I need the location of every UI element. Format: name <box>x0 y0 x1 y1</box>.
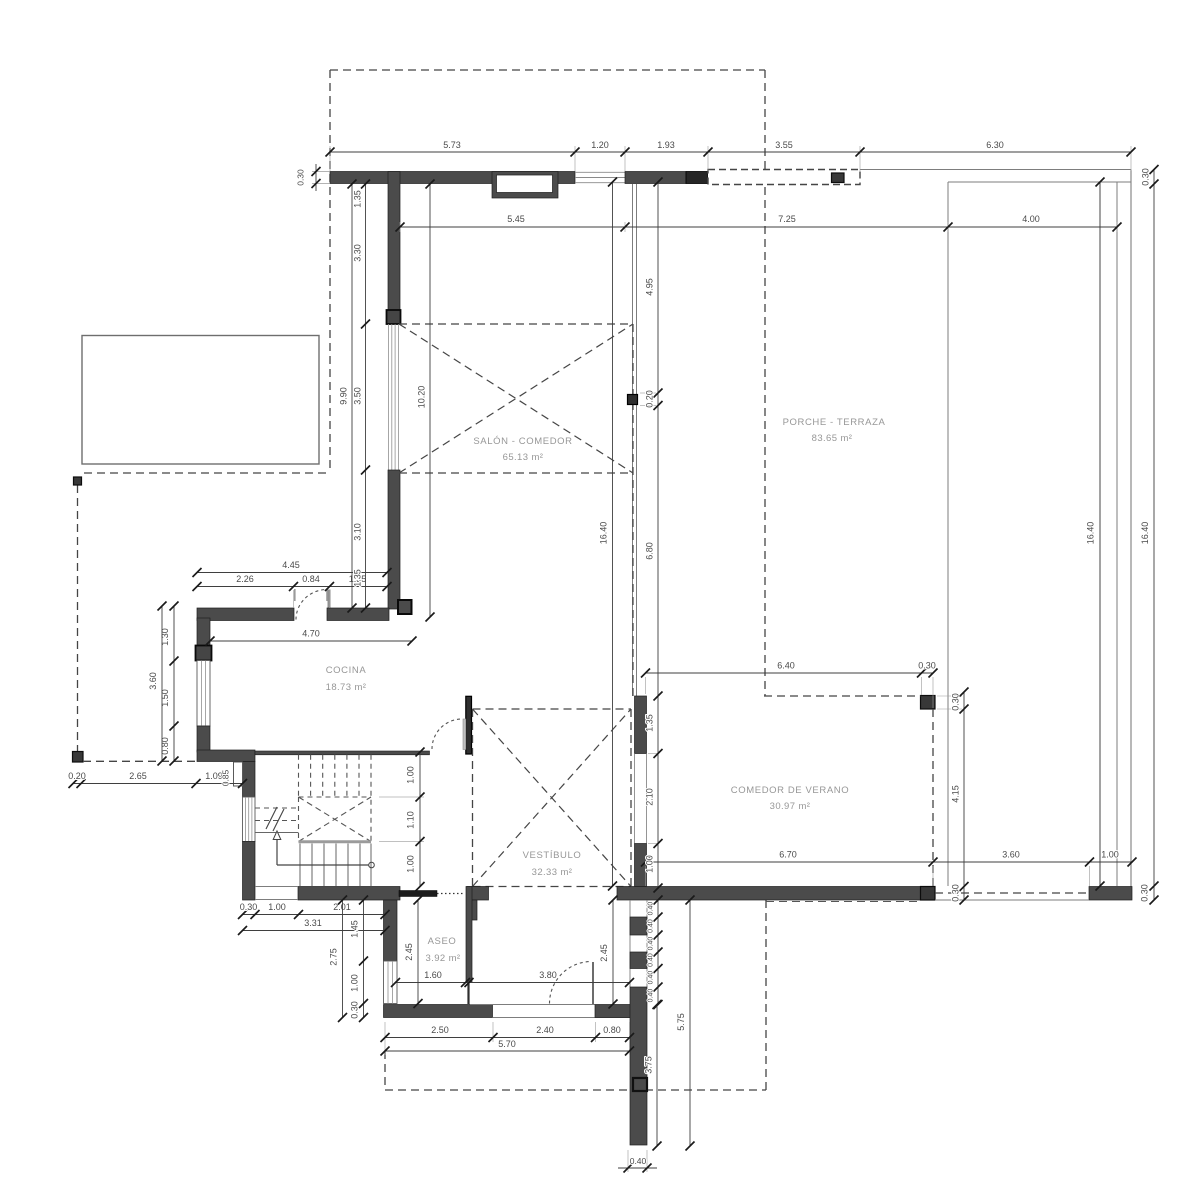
svg-text:0.30: 0.30 <box>296 169 306 186</box>
svg-text:30.97 m²: 30.97 m² <box>770 801 811 812</box>
svg-text:0.30: 0.30 <box>350 1001 360 1019</box>
svg-text:4.45: 4.45 <box>282 560 300 570</box>
svg-text:1.30: 1.30 <box>160 628 170 646</box>
svg-text:1.00: 1.00 <box>268 902 286 912</box>
svg-text:9.90: 9.90 <box>339 387 349 405</box>
svg-text:0.80: 0.80 <box>603 1025 621 1035</box>
svg-text:2.26: 2.26 <box>236 574 254 584</box>
svg-text:0.84: 0.84 <box>302 574 320 584</box>
svg-text:0.40: 0.40 <box>648 919 655 933</box>
svg-text:16.40: 16.40 <box>1086 522 1096 545</box>
svg-text:65.13 m²: 65.13 m² <box>503 452 544 463</box>
svg-text:0.80: 0.80 <box>160 737 170 755</box>
svg-text:5.75: 5.75 <box>676 1013 686 1031</box>
svg-text:1.50: 1.50 <box>160 689 170 707</box>
svg-text:5.70: 5.70 <box>498 1039 516 1049</box>
svg-text:2.10: 2.10 <box>645 788 655 806</box>
svg-text:0.40: 0.40 <box>648 902 655 916</box>
svg-text:COCINA: COCINA <box>326 665 367 676</box>
svg-text:0.40: 0.40 <box>648 953 655 967</box>
svg-text:2.45: 2.45 <box>404 943 414 961</box>
svg-text:0.85: 0.85 <box>221 769 231 786</box>
svg-text:0.40: 0.40 <box>648 937 655 951</box>
svg-text:3.50: 3.50 <box>353 387 363 405</box>
svg-text:4.95: 4.95 <box>645 278 655 296</box>
svg-text:1.35: 1.35 <box>353 190 363 208</box>
svg-text:0.30: 0.30 <box>1141 168 1151 186</box>
svg-text:83.65 m²: 83.65 m² <box>812 433 853 444</box>
svg-text:6.70: 6.70 <box>779 850 797 860</box>
svg-text:1.00: 1.00 <box>645 855 655 873</box>
svg-text:0.40: 0.40 <box>630 1156 647 1166</box>
svg-text:4.15: 4.15 <box>951 785 961 803</box>
svg-text:32.33 m²: 32.33 m² <box>532 867 573 878</box>
svg-text:5.45: 5.45 <box>507 214 525 224</box>
svg-text:1.35: 1.35 <box>645 714 655 732</box>
svg-text:2.40: 2.40 <box>536 1025 554 1035</box>
svg-text:VESTÍBULO: VESTÍBULO <box>523 850 582 861</box>
svg-text:0.30: 0.30 <box>951 884 961 902</box>
svg-text:6.80: 6.80 <box>645 542 655 560</box>
svg-text:3.75: 3.75 <box>644 1056 654 1074</box>
svg-text:1.00: 1.00 <box>350 974 360 992</box>
svg-text:1.10: 1.10 <box>406 811 416 829</box>
svg-text:3.60: 3.60 <box>1002 850 1020 860</box>
svg-text:3.60: 3.60 <box>148 672 158 690</box>
svg-text:3.55: 3.55 <box>775 140 793 150</box>
svg-text:1.45: 1.45 <box>350 920 360 938</box>
svg-text:0.30: 0.30 <box>951 693 961 711</box>
svg-text:1.00: 1.00 <box>406 855 416 873</box>
svg-text:1.00: 1.00 <box>406 766 416 784</box>
svg-text:0.20: 0.20 <box>68 771 86 781</box>
svg-text:10.20: 10.20 <box>417 386 427 409</box>
svg-text:18.73 m²: 18.73 m² <box>326 682 367 693</box>
svg-text:0.20: 0.20 <box>645 390 655 408</box>
svg-text:1.60: 1.60 <box>424 970 442 980</box>
svg-text:1.93: 1.93 <box>657 140 675 150</box>
svg-text:4.70: 4.70 <box>302 629 320 639</box>
svg-text:6.30: 6.30 <box>986 140 1004 150</box>
svg-text:3.10: 3.10 <box>353 523 363 541</box>
svg-text:SALÓN - COMEDOR: SALÓN - COMEDOR <box>473 436 572 447</box>
svg-text:1.00: 1.00 <box>1101 850 1119 860</box>
svg-text:2.01: 2.01 <box>333 902 351 912</box>
svg-text:0.40: 0.40 <box>648 989 655 1003</box>
svg-text:COMEDOR DE VERANO: COMEDOR DE VERANO <box>731 785 849 796</box>
svg-text:2.75: 2.75 <box>329 948 339 966</box>
svg-text:ASEO: ASEO <box>428 936 457 947</box>
svg-text:16.40: 16.40 <box>599 522 609 545</box>
svg-text:2.45: 2.45 <box>599 944 609 962</box>
svg-text:2.65: 2.65 <box>129 771 147 781</box>
svg-text:3.31: 3.31 <box>304 918 322 928</box>
svg-text:6.40: 6.40 <box>777 661 795 671</box>
svg-text:0.30: 0.30 <box>1140 884 1150 902</box>
svg-text:16.40: 16.40 <box>1140 522 1150 545</box>
svg-text:2.50: 2.50 <box>431 1025 449 1035</box>
svg-text:0.30: 0.30 <box>240 902 258 912</box>
svg-text:3.30: 3.30 <box>353 244 363 262</box>
svg-text:1.20: 1.20 <box>591 140 609 150</box>
svg-text:3.80: 3.80 <box>539 970 557 980</box>
svg-text:3.92 m²: 3.92 m² <box>425 953 460 964</box>
svg-text:0.40: 0.40 <box>648 971 655 985</box>
svg-text:7.25: 7.25 <box>778 214 796 224</box>
svg-text:4.00: 4.00 <box>1022 214 1040 224</box>
svg-text:PORCHE - TERRAZA: PORCHE - TERRAZA <box>783 417 886 428</box>
svg-text:5.73: 5.73 <box>443 140 461 150</box>
svg-text:0.30: 0.30 <box>918 661 936 671</box>
svg-text:1.35: 1.35 <box>353 569 363 587</box>
